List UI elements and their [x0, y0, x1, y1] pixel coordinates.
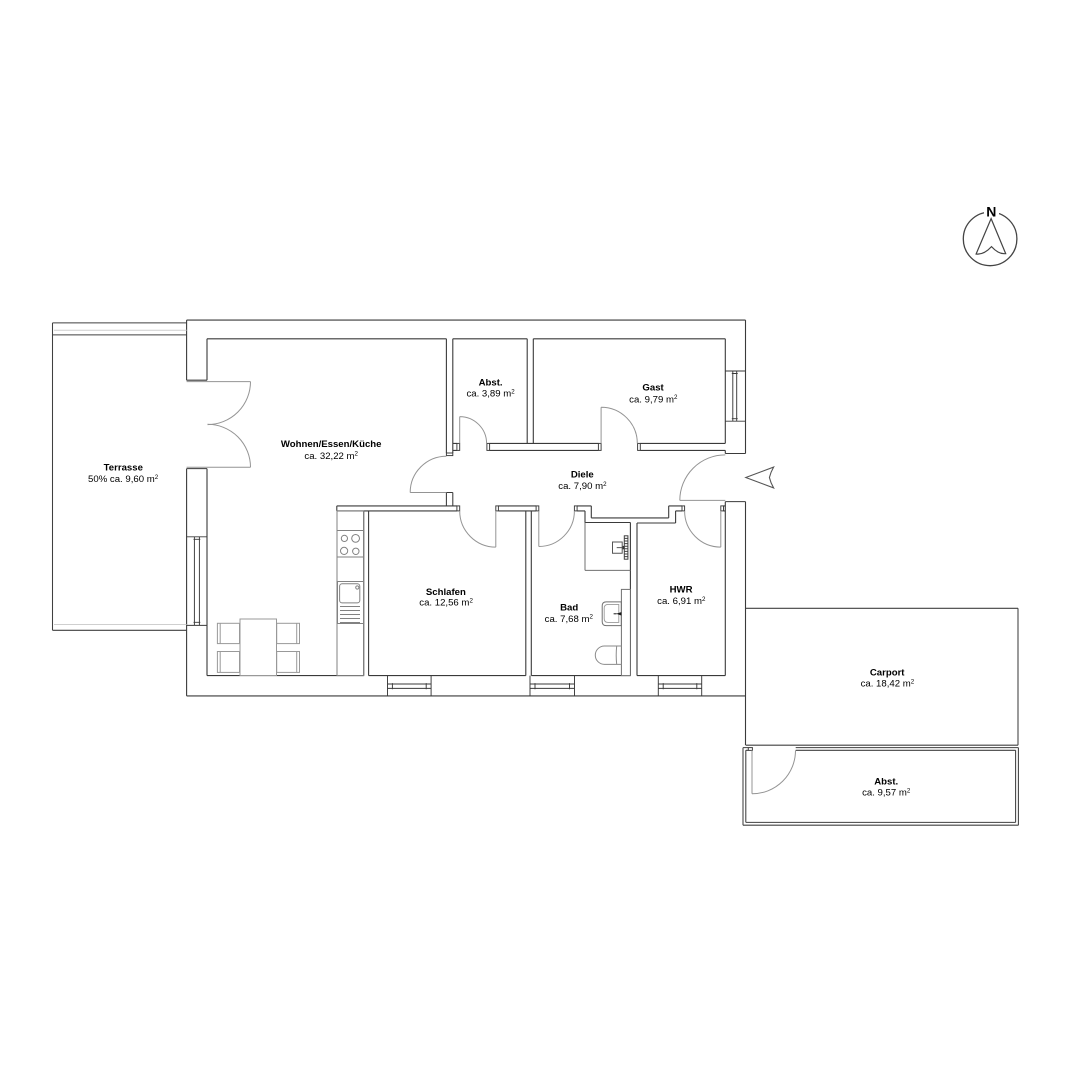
svg-text:ca. 7,90 m2: ca. 7,90 m2	[558, 481, 607, 492]
svg-text:Bad: Bad	[560, 603, 578, 614]
svg-text:Abst.: Abst.	[479, 377, 503, 388]
svg-text:Diele: Diele	[571, 470, 594, 481]
svg-text:ca. 3,89 m2: ca. 3,89 m2	[466, 388, 515, 399]
svg-text:Schlafen: Schlafen	[426, 587, 466, 598]
svg-text:ca. 12,56 m2: ca. 12,56 m2	[419, 597, 473, 608]
svg-text:N: N	[986, 203, 996, 219]
svg-text:Abst.: Abst.	[874, 776, 898, 787]
svg-text:HWR: HWR	[670, 585, 693, 596]
svg-text:50% ca. 9,60 m2: 50% ca. 9,60 m2	[88, 474, 159, 485]
svg-text:Terrasse: Terrasse	[104, 462, 143, 473]
svg-text:ca. 6,91 m2: ca. 6,91 m2	[657, 596, 706, 607]
svg-text:ca. 18,42 m2: ca. 18,42 m2	[861, 678, 915, 689]
svg-text:ca. 32,22 m2: ca. 32,22 m2	[304, 451, 358, 462]
svg-text:ca. 9,79 m2: ca. 9,79 m2	[629, 394, 678, 405]
svg-text:ca. 7,68 m2: ca. 7,68 m2	[545, 614, 594, 625]
svg-text:Gast: Gast	[642, 383, 664, 394]
svg-text:Wohnen/Essen/Küche: Wohnen/Essen/Küche	[281, 439, 382, 450]
svg-text:ca. 9,57 m2: ca. 9,57 m2	[862, 787, 911, 798]
svg-text:Carport: Carport	[870, 668, 905, 679]
